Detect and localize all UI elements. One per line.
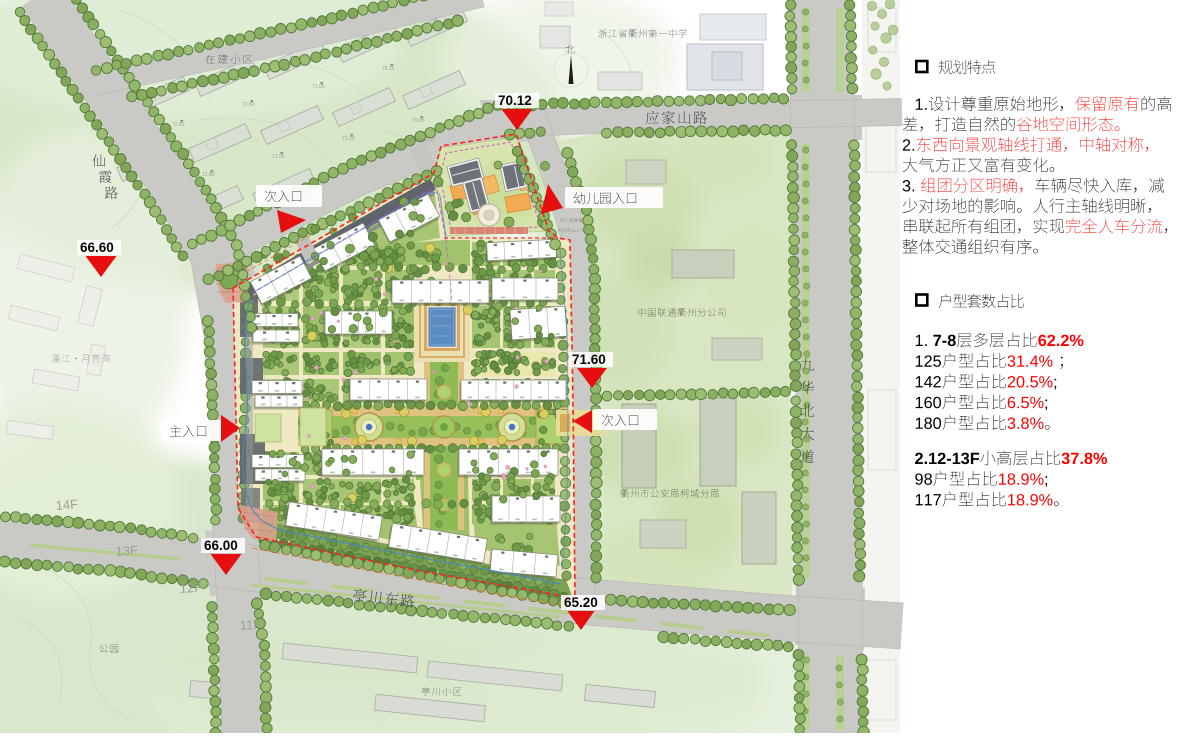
svg-text:12F: 12F xyxy=(179,579,202,596)
svg-text:70.95: 70.95 xyxy=(412,118,425,124)
svg-text:71.00: 71.00 xyxy=(342,136,355,142)
svg-text:71.60: 71.60 xyxy=(312,84,325,90)
svg-text:66.60: 66.60 xyxy=(80,240,114,255)
svg-text:70.12: 70.12 xyxy=(498,93,532,108)
svg-text:71.50: 71.50 xyxy=(272,154,285,160)
svg-text:70.15: 70.15 xyxy=(382,66,395,72)
svg-text:14F: 14F xyxy=(55,496,78,513)
svg-text:65.20: 65.20 xyxy=(564,595,598,610)
svg-text:72.60: 72.60 xyxy=(172,122,185,128)
svg-text:72.60: 72.60 xyxy=(242,102,255,108)
svg-text:66.00: 66.00 xyxy=(204,538,238,553)
svg-text:11F: 11F xyxy=(239,617,261,633)
svg-text:71.60: 71.60 xyxy=(572,352,606,367)
svg-text:13F: 13F xyxy=(115,542,138,559)
svg-text:71.80: 71.80 xyxy=(202,172,215,178)
